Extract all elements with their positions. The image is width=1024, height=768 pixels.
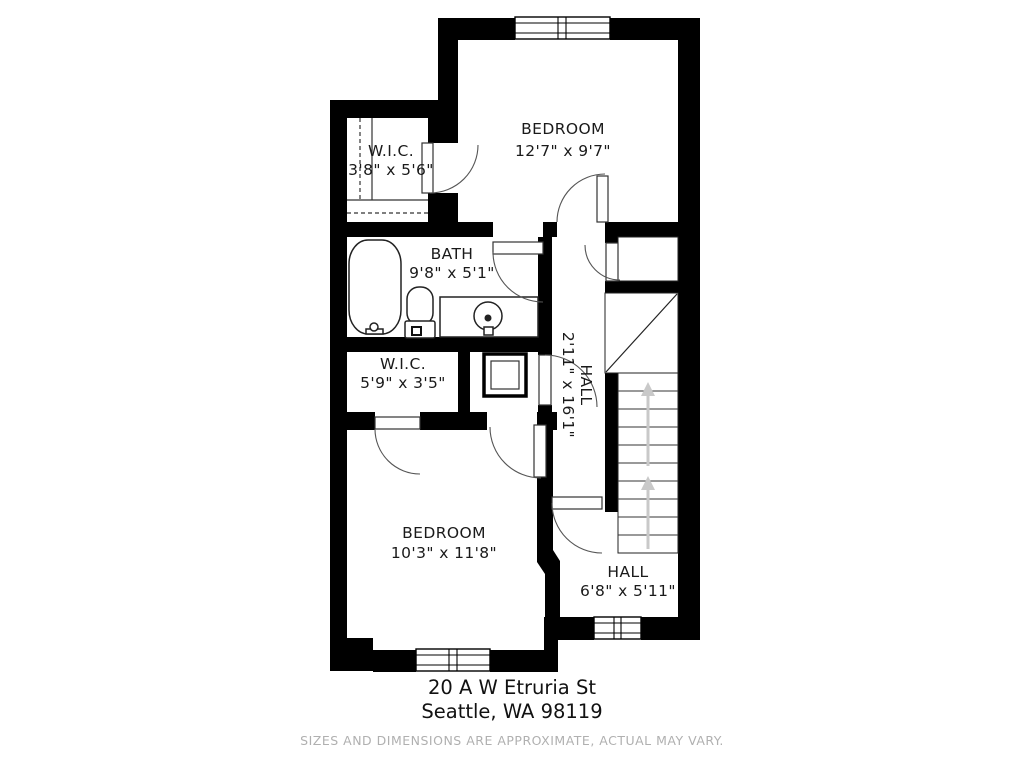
bathtub — [349, 240, 401, 334]
room-label-wic-2: W.I.C. — [380, 355, 426, 373]
door-arc — [493, 252, 543, 302]
sink-faucet — [484, 327, 493, 335]
room-dims-hall-1: 2'11" x 16'1" — [559, 332, 577, 438]
door-leaf — [552, 497, 602, 509]
room-label-hall-vertical: HALL 2'11" x 16'1" — [559, 332, 595, 438]
window-bottom-hall — [594, 617, 641, 639]
door-leaf — [597, 176, 608, 222]
room-dims-hall-2: 6'8" x 5'11" — [580, 582, 676, 600]
address-line-2: Seattle, WA 98119 — [421, 700, 602, 723]
sink-drain — [485, 315, 492, 322]
door-leaf — [493, 242, 543, 254]
room-label-hall-1: HALL — [577, 364, 595, 405]
room-dims-wic-2: 5'9" x 3'5" — [360, 374, 446, 392]
disclaimer-text: SIZES AND DIMENSIONS ARE APPROXIMATE, AC… — [300, 733, 724, 748]
room-dims-wic-1: 3'8" x 5'6" — [348, 161, 434, 179]
door-leaf — [534, 425, 546, 477]
window-bottom-bedroom — [416, 649, 490, 671]
room-label-bedroom-1: BEDROOM — [521, 120, 605, 138]
bathtub-faucet-knob — [370, 323, 378, 331]
floorplan: W.I.C. 3'8" x 5'6" BEDROOM 12'7" x 9'7" … — [0, 0, 1024, 768]
toilet-flush — [412, 327, 421, 335]
door-leaf — [606, 243, 618, 281]
room-label-bedroom-2: BEDROOM — [402, 524, 486, 542]
room-label-hall-2: HALL — [607, 563, 648, 581]
stair-alcove — [618, 237, 678, 281]
footer-text: 20 A W Etruria St Seattle, WA 98119 SIZE… — [300, 676, 724, 748]
room-dims-bath: 9'8" x 5'1" — [409, 264, 495, 282]
address-line-1: 20 A W Etruria St — [428, 676, 596, 699]
room-label-bath: BATH — [431, 245, 474, 263]
door-arc — [430, 145, 478, 193]
window-top-bedroom — [515, 17, 610, 39]
door-arc — [490, 427, 541, 478]
room-label-wic-1: W.I.C. — [368, 142, 414, 160]
washer-dryer-unit — [484, 354, 526, 396]
door-arc — [552, 503, 602, 553]
door-leaf — [375, 417, 420, 429]
room-dims-bedroom-2: 10'3" x 11'8" — [391, 544, 497, 562]
door-arc — [375, 429, 420, 474]
door-leaf — [539, 355, 551, 405]
closet-unit — [484, 354, 526, 396]
room-dims-bedroom-1: 12'7" x 9'7" — [515, 142, 611, 160]
toilet-bowl — [407, 287, 433, 325]
